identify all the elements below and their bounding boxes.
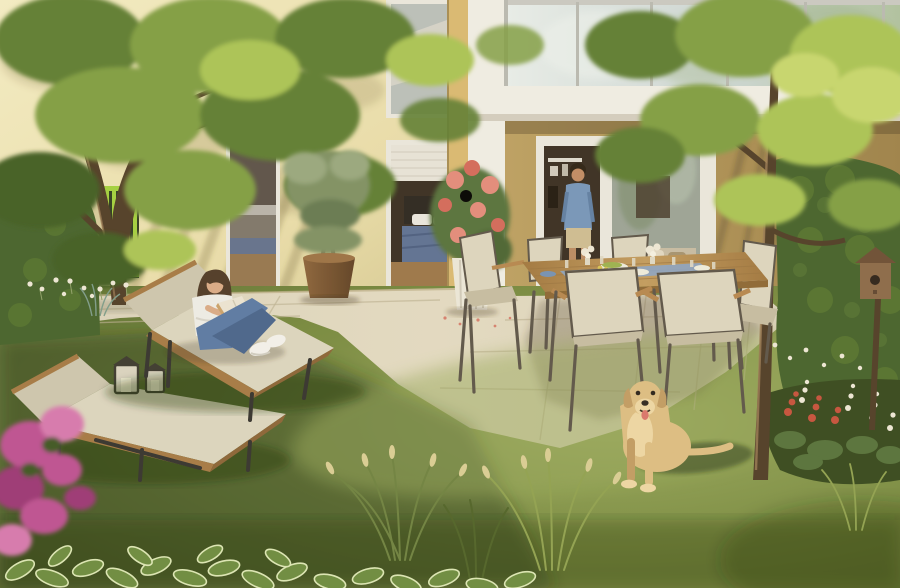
light-wash	[0, 0, 900, 588]
scene-root: Photorealistic rendering of a private gr…	[0, 0, 900, 588]
garden-rendering: Photorealistic rendering of a private gr…	[0, 0, 900, 588]
